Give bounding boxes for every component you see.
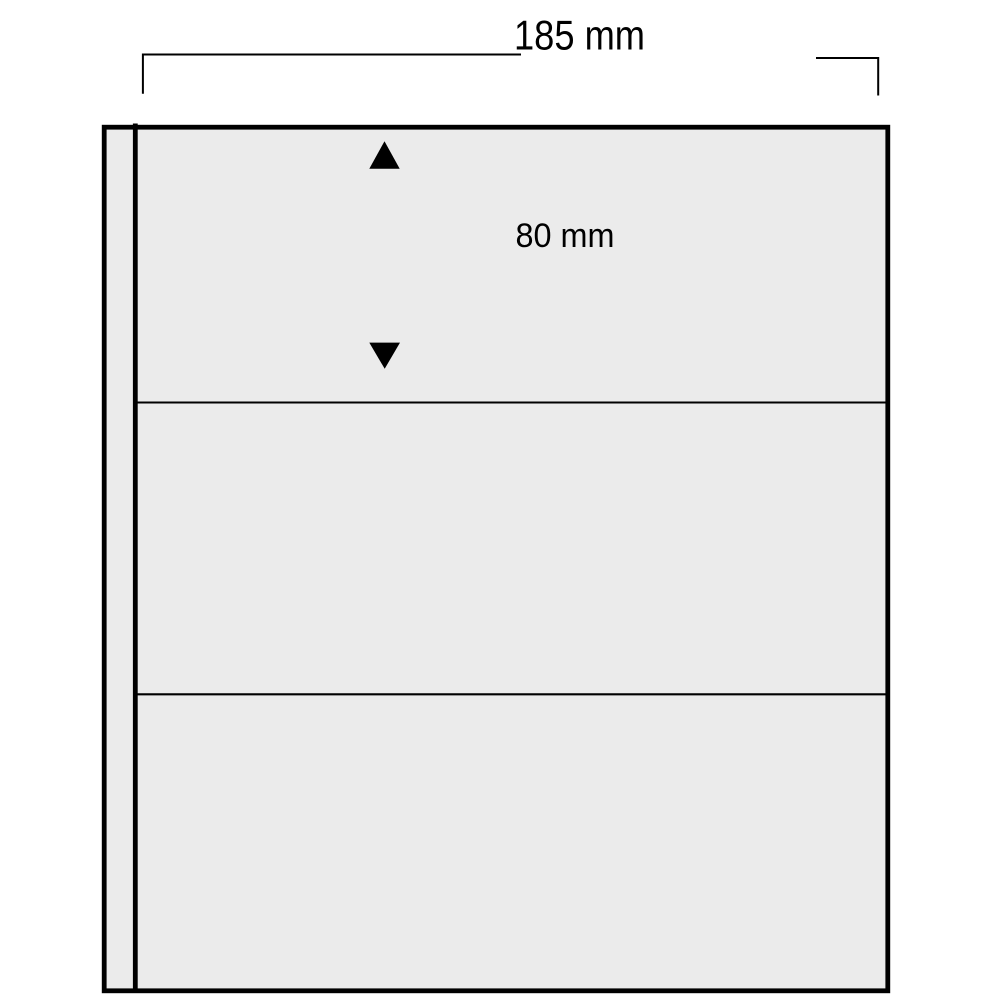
svg-text:80 mm: 80 mm bbox=[516, 217, 615, 255]
svg-text:185 mm: 185 mm bbox=[514, 12, 645, 59]
